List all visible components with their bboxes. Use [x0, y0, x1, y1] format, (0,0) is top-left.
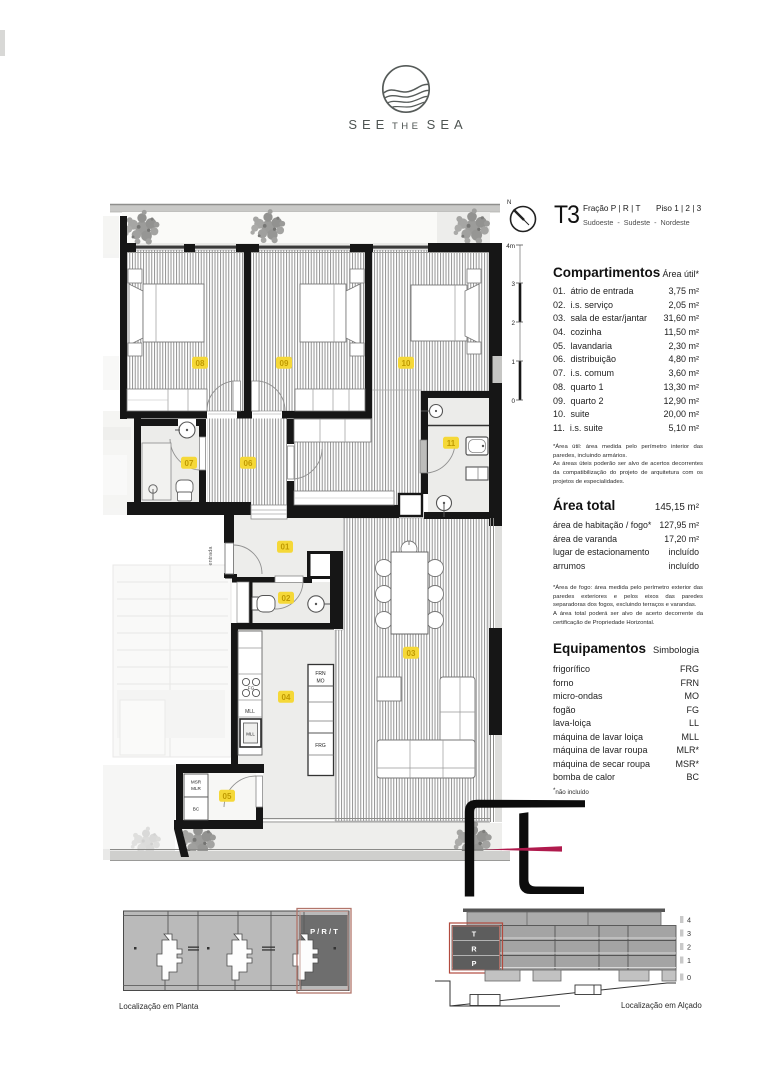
svg-text:2: 2	[687, 943, 691, 952]
svg-text:FG: FG	[248, 686, 255, 691]
svg-text:4: 4	[687, 916, 691, 925]
svg-text:entrada: entrada	[208, 546, 214, 566]
svg-text:4m: 4m	[506, 243, 515, 250]
svg-text:T: T	[472, 930, 477, 939]
svg-text:10: 10	[402, 359, 411, 368]
svg-text:11: 11	[447, 439, 456, 448]
svg-text:02: 02	[282, 594, 291, 603]
svg-text:MSR: MSR	[191, 780, 202, 785]
svg-text:08: 08	[196, 359, 205, 368]
svg-text:1: 1	[687, 956, 691, 965]
svg-text:01: 01	[281, 543, 290, 552]
svg-text:04: 04	[282, 693, 291, 702]
svg-text:3: 3	[687, 929, 691, 938]
svg-text:MLL: MLL	[245, 709, 255, 715]
svg-text:BC: BC	[193, 807, 200, 812]
svg-text:MLR: MLR	[191, 786, 201, 791]
svg-text:FRG: FRG	[315, 743, 326, 749]
svg-text:05: 05	[223, 792, 232, 801]
svg-text:07: 07	[185, 459, 194, 468]
svg-text:1: 1	[511, 359, 515, 366]
svg-text:03: 03	[407, 649, 416, 658]
svg-text:R: R	[471, 945, 477, 954]
svg-text:09: 09	[280, 359, 289, 368]
svg-text:MLL: MLL	[246, 732, 255, 737]
svg-text:3: 3	[511, 281, 515, 288]
svg-text:2: 2	[511, 320, 515, 327]
svg-text:P / R / T: P / R / T	[310, 927, 338, 936]
svg-text:N: N	[507, 200, 511, 206]
svg-text:FRN: FRN	[315, 671, 326, 677]
svg-text:P: P	[472, 959, 477, 968]
svg-text:0: 0	[687, 973, 691, 982]
svg-text:0: 0	[511, 398, 515, 405]
svg-text:MO: MO	[316, 679, 324, 685]
svg-text:06: 06	[244, 459, 253, 468]
